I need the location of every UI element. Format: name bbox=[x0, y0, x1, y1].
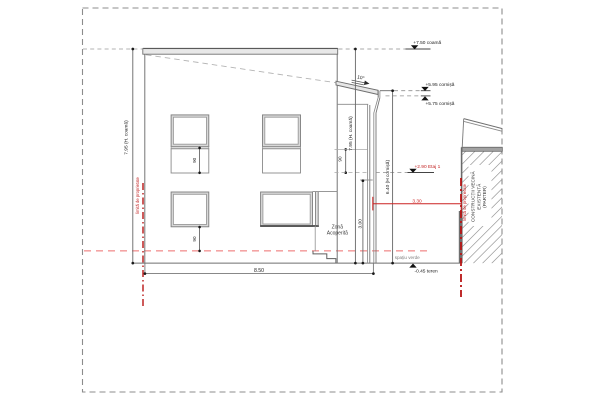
svg-text:7.95 (H. coamă): 7.95 (H. coamă) bbox=[123, 120, 129, 155]
svg-text:90: 90 bbox=[192, 236, 197, 242]
svg-text:3.00: 3.00 bbox=[358, 219, 364, 229]
svg-text:+5.75 cornișă: +5.75 cornișă bbox=[426, 101, 455, 107]
svg-text:+2.90 Etaj 1: +2.90 Etaj 1 bbox=[415, 164, 441, 170]
svg-text:6.40 (H cornișă): 6.40 (H cornișă) bbox=[385, 160, 391, 195]
svg-text:90: 90 bbox=[337, 156, 342, 162]
svg-text:10°: 10° bbox=[357, 74, 365, 81]
svg-text:7.95 (H. coamă): 7.95 (H. coamă) bbox=[348, 116, 354, 151]
svg-text:+5.95 cornișă: +5.95 cornișă bbox=[426, 82, 455, 88]
svg-text:-0.45 teren: -0.45 teren bbox=[415, 269, 439, 275]
svg-text:3.30: 3.30 bbox=[412, 198, 422, 204]
svg-text:90: 90 bbox=[192, 157, 197, 163]
svg-text:limită de proprietate: limită de proprietate bbox=[135, 176, 140, 213]
svg-text:EXISTENTĂ: EXISTENTĂ bbox=[475, 183, 481, 210]
svg-text:CONSTRUCȚII VECINĂ: CONSTRUCȚII VECINĂ bbox=[470, 170, 476, 222]
svg-text:(PARTER): (PARTER) bbox=[482, 186, 487, 208]
svg-text:Acoperită: Acoperită bbox=[327, 230, 348, 236]
svg-text:spațiu verde: spațiu verde bbox=[395, 255, 420, 260]
svg-text:+7.50 coamă: +7.50 coamă bbox=[413, 40, 441, 46]
svg-text:limită de proprietate: limită de proprietate bbox=[462, 183, 467, 220]
svg-text:8.50: 8.50 bbox=[254, 268, 264, 274]
